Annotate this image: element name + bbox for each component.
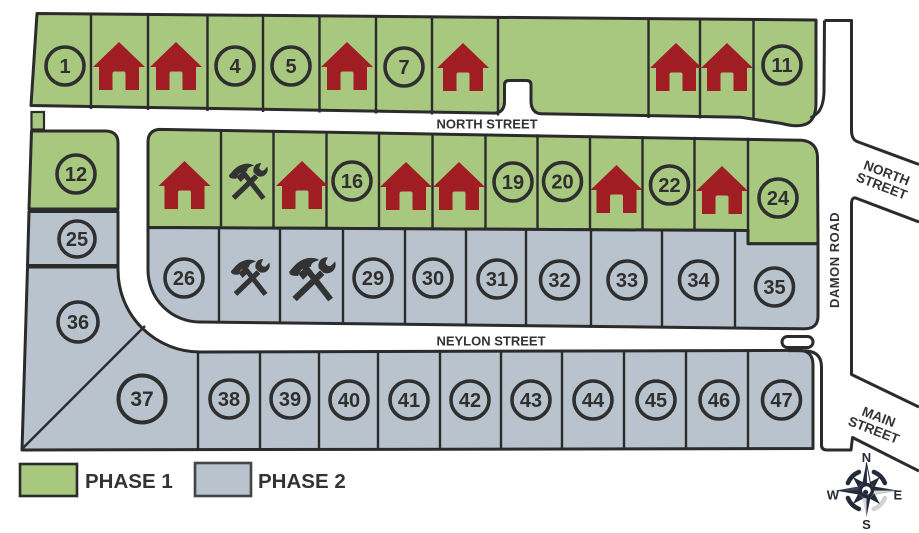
svg-text:36: 36 [67,312,89,334]
svg-text:W: W [827,488,840,503]
svg-text:43: 43 [520,390,542,412]
svg-text:N: N [862,450,871,465]
svg-text:33: 33 [616,270,638,292]
svg-text:35: 35 [763,277,785,299]
svg-text:29: 29 [362,268,384,290]
svg-text:19: 19 [502,172,524,194]
svg-text:25: 25 [66,229,88,251]
svg-text:NEYLON STREET: NEYLON STREET [436,334,545,349]
svg-text:34: 34 [687,270,710,292]
svg-text:4: 4 [229,56,241,78]
svg-text:39: 39 [279,389,301,411]
svg-text:PHASE 2: PHASE 2 [258,470,346,493]
svg-text:44: 44 [582,390,605,412]
svg-text:NORTH STREET: NORTH STREET [436,117,537,132]
svg-text:DAMON ROAD: DAMON ROAD [827,212,842,308]
svg-text:22: 22 [658,175,680,197]
svg-text:30: 30 [422,268,444,290]
svg-text:E: E [894,488,903,503]
svg-text:45: 45 [645,390,667,412]
svg-text:38: 38 [218,389,240,411]
svg-text:PHASE 1: PHASE 1 [85,470,173,493]
svg-text:11: 11 [771,55,792,77]
svg-text:46: 46 [708,390,730,412]
svg-text:31: 31 [486,269,508,291]
svg-text:1: 1 [59,56,70,78]
svg-text:20: 20 [551,172,573,194]
svg-text:47: 47 [770,390,792,412]
svg-text:41: 41 [398,390,420,412]
svg-text:S: S [862,517,871,532]
svg-text:32: 32 [548,270,570,292]
svg-text:16: 16 [341,171,363,193]
svg-text:24: 24 [767,188,790,210]
svg-text:40: 40 [338,390,360,412]
svg-text:37: 37 [130,388,153,411]
svg-text:5: 5 [285,56,296,78]
svg-text:12: 12 [65,164,87,186]
svg-text:7: 7 [398,57,409,79]
svg-text:26: 26 [173,268,195,290]
svg-text:42: 42 [459,390,481,412]
